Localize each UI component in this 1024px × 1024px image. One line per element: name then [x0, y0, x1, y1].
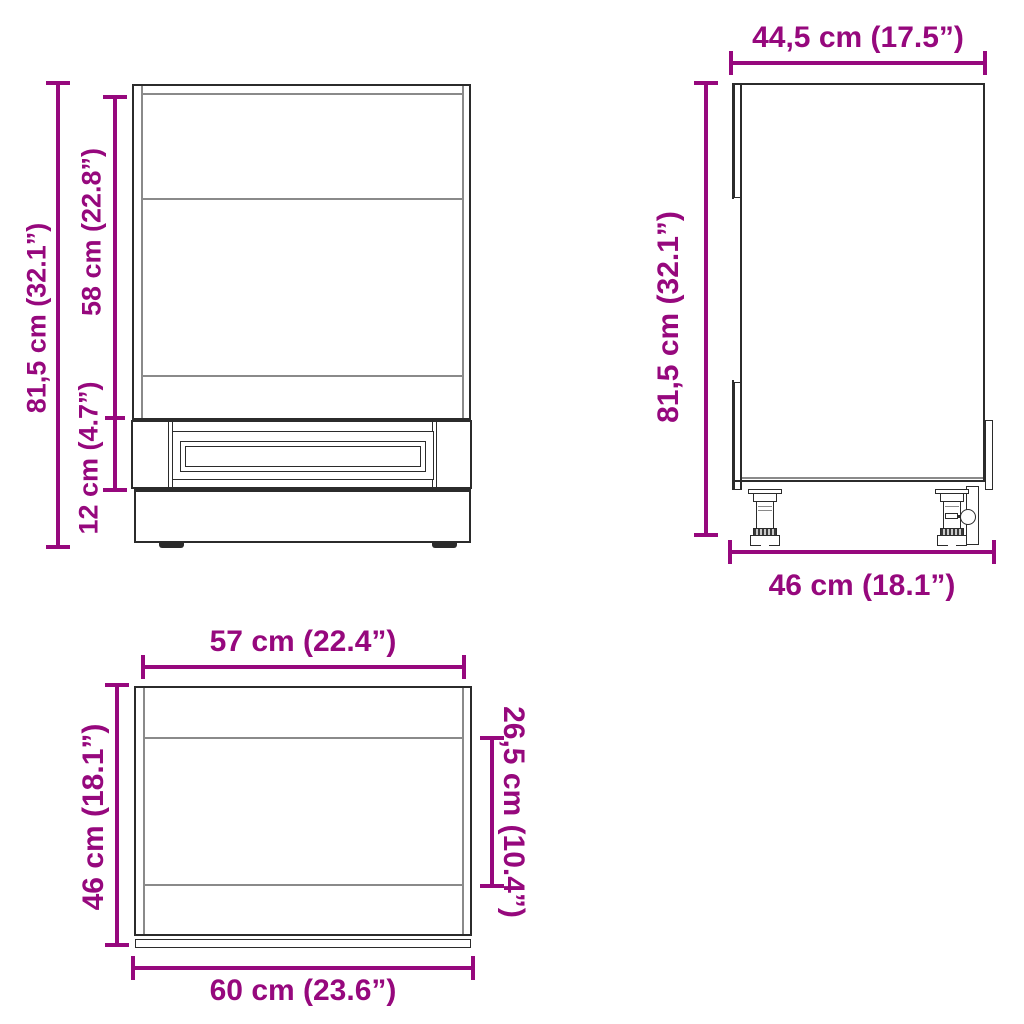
foot-rib-line [758, 506, 772, 507]
dim-cap [103, 95, 127, 99]
dim-cap [131, 956, 135, 980]
dim-cap [729, 51, 733, 75]
side-top-depth-label: 44,5 cm (17.5”) [752, 21, 964, 55]
plan-inner-width-label: 57 cm (22.4”) [210, 625, 397, 659]
dim-cap [105, 683, 129, 687]
dim-cap [105, 943, 129, 947]
dim-cap [46, 81, 70, 85]
side-bottom-depth-label: 46 cm (18.1”) [769, 569, 956, 603]
door-inner-edge-line [740, 83, 742, 490]
dim-cap [983, 51, 987, 75]
side-height-dim-line [704, 83, 708, 535]
dim-cap [471, 956, 475, 980]
front-total-height-label: 81,5 cm (32.1”) [22, 223, 53, 414]
plan-outer-width-dim-line [133, 966, 473, 970]
adjuster-knob [960, 509, 976, 525]
front-body-height-label: 58 cm (22.8”) [77, 148, 108, 316]
plan-depth-dim-line [115, 685, 119, 945]
front-plinth-height-label: 12 cm (4.7”) [74, 381, 105, 534]
door-recess-patch [729, 199, 734, 380]
plan-partial-depth-label: 26,5 cm (10.4”) [496, 706, 530, 918]
dim-cap [694, 533, 718, 537]
front-drawer-front [131, 420, 472, 489]
door-bottom-rail-edge [732, 382, 735, 490]
dim-cap [46, 545, 70, 549]
plan-right-side-panel-line [462, 688, 464, 934]
side-height-label: 81,5 cm (32.1”) [652, 211, 686, 423]
door-rail-join-line [732, 382, 741, 384]
right-foot-base-notch [948, 542, 956, 547]
left-foot-base-notch [761, 542, 769, 547]
side-bottom-depth-dim-line [730, 550, 994, 554]
front-split-dim-line [113, 97, 117, 490]
drawer-stile-line [168, 422, 169, 487]
plan-front-divider-line [143, 884, 462, 886]
left-foot-stem [756, 501, 774, 529]
dim-cap [694, 81, 718, 85]
plan-back-divider-line [143, 737, 462, 739]
front-plinth [134, 489, 471, 543]
front-cabinet-body [132, 84, 471, 420]
plan-inner-width-dim-line [143, 665, 464, 669]
front-top-rail-line [141, 93, 462, 95]
plan-outer-width-label: 60 cm (23.6”) [210, 974, 397, 1008]
back-rail-strip [985, 420, 993, 490]
door-top-rail-edge [732, 83, 735, 197]
dimension-diagram: 81,5 cm (32.1”) 58 cm (22.8”) 12 cm (4.7… [0, 0, 1024, 1024]
front-total-height-dim-line [56, 83, 60, 547]
dim-cap [103, 488, 127, 492]
front-left-foot [159, 543, 184, 548]
dim-tick [105, 416, 125, 420]
front-lower-divider-line [141, 375, 462, 377]
plan-cabinet-body [134, 686, 472, 936]
dim-cap [728, 540, 732, 564]
door-bottom-edge-line [732, 489, 742, 491]
plan-partial-depth-dim-line [490, 738, 494, 886]
plan-left-side-panel-line [143, 688, 145, 934]
dim-cap [141, 655, 145, 679]
side-bottom-panel-line [741, 477, 983, 479]
drawer-panel-frame-inner [185, 446, 421, 467]
door-rail-join-line [732, 197, 741, 199]
dim-cap [992, 540, 996, 564]
side-top-depth-dim-line [731, 61, 986, 65]
dim-cap [462, 655, 466, 679]
front-upper-divider-line [141, 198, 462, 200]
foot-rib-line [945, 506, 959, 507]
drawer-stile-line [436, 422, 437, 487]
side-cabinet-body [732, 83, 985, 482]
front-right-foot [432, 543, 457, 548]
plan-door-front-strip [135, 939, 471, 948]
plan-depth-label: 46 cm (18.1”) [77, 724, 111, 911]
foot-rib-line [758, 510, 772, 511]
front-right-side-panel-line [462, 86, 464, 418]
front-left-side-panel-line [141, 86, 143, 418]
